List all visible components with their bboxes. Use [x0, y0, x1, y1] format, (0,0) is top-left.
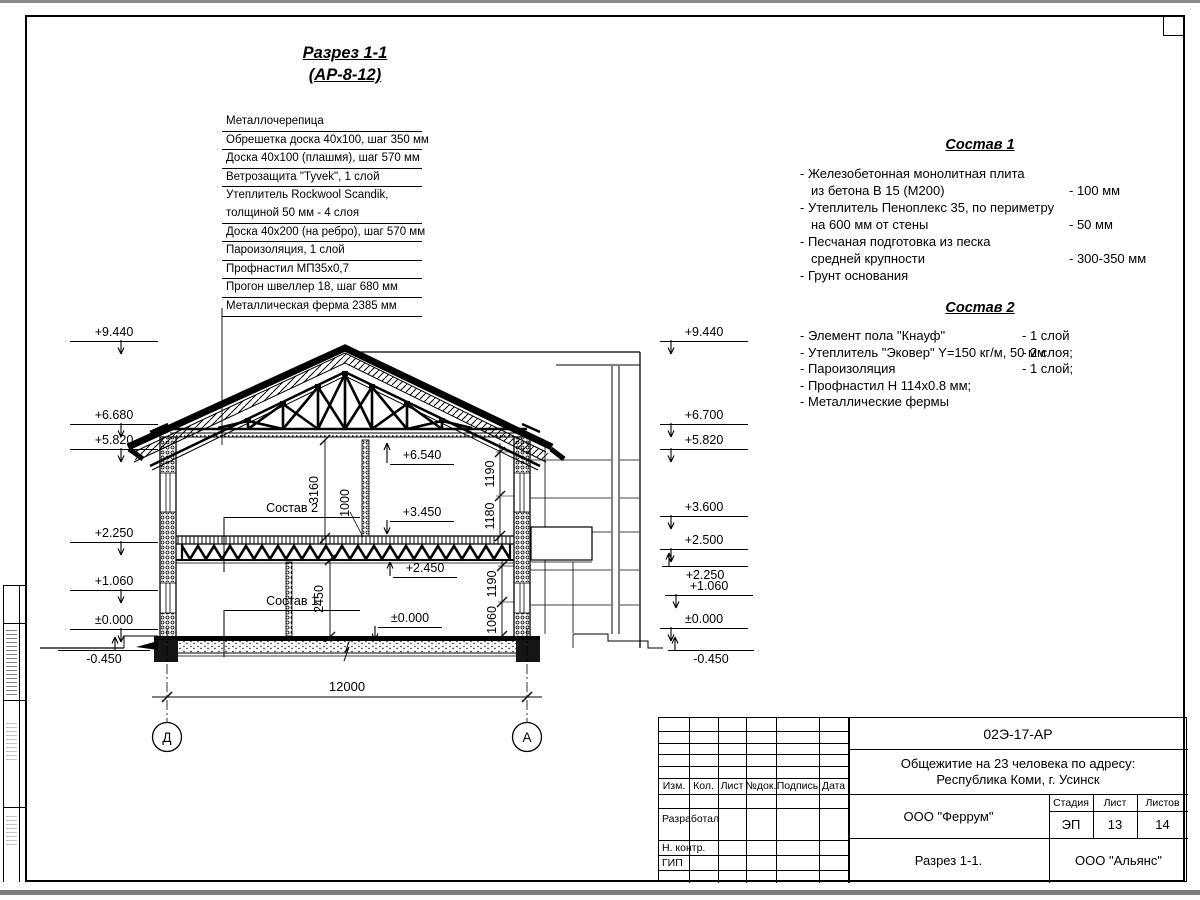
value: ЭП [1062, 817, 1081, 832]
sostav-row: - Элемент пола "Кнауф"- 1 слой [800, 328, 1160, 345]
elevation-value: +5.820 [95, 433, 134, 447]
elevation-arrow-icon [116, 589, 126, 605]
sostav-row: - Металлические фермы [800, 394, 1160, 411]
sostav-value [1058, 233, 1160, 250]
elevation-value: +1.060 [690, 579, 729, 593]
sostav-value: - 2 слоя; [1022, 345, 1160, 362]
sostav-text: - Грунт основания [800, 267, 1058, 284]
axis-letter-right: А [522, 730, 531, 745]
col-label: Кол. [693, 780, 714, 792]
label: Листов [1145, 797, 1179, 809]
sostav-text: - Утеплитель Пеноплекс 35, по периметру [800, 199, 1058, 216]
sostav-text: - Металлические фермы [800, 394, 1022, 411]
elevation-value: -0.450 [693, 652, 728, 666]
elevation-mark-inner-2: +2.450 [393, 561, 457, 578]
sostav2-title: Состав 2 [800, 300, 1160, 316]
annex-steps [573, 634, 663, 648]
elevation-arrow-icon [110, 635, 120, 651]
col-label: Дата [822, 780, 845, 792]
roof-layers-list: Металлочерепица Обрешетка доска 40х100, … [222, 113, 422, 317]
dim-span: 12000 [329, 679, 365, 694]
layer-item: Прогон швеллер 18, шаг 680 мм [222, 279, 422, 298]
dim-1180: 1180 [483, 503, 497, 530]
col-podpis: Подпись [776, 778, 819, 794]
row-label: ГИП [662, 857, 683, 869]
dim-1060: 1060 [485, 606, 499, 634]
elevation-mark-right-7: ±0.000 [660, 612, 748, 629]
sostav-text: - Профнастил Н 114х0.8 мм; [800, 378, 1022, 395]
elevation-value: +6.700 [685, 408, 724, 422]
ref-text: Состав 2 [266, 501, 318, 515]
sostav-row: - Железобетонная монолитная плита [800, 165, 1160, 182]
elevation-value: +6.680 [95, 408, 134, 422]
foundation-right [516, 640, 540, 662]
sostav1-block: Состав 1 - Железобетонная монолитная пли… [800, 137, 1160, 284]
title-block-line [659, 794, 848, 795]
sheet-label: Лист [1093, 794, 1137, 811]
sostav-row: - Утеплитель Пеноплекс 35, по периметру [800, 199, 1160, 216]
row-ncontr: Н. контр. [662, 842, 705, 854]
sheets-total: 14 [1137, 811, 1188, 838]
drawing-title-text: Разрез 1-1. [915, 853, 982, 868]
dim-1190-lower: 1190 [485, 571, 499, 598]
elevation-value: ±0.000 [95, 613, 133, 627]
elevation-mark-right-8: -0.450 [668, 650, 754, 668]
elevation-arrow-icon [385, 560, 395, 576]
sostav-value [1022, 394, 1160, 411]
ref-label-sostav1: Состав 1 [224, 593, 360, 611]
dim-1190-upper: 1190 [483, 461, 497, 488]
elevation-mark-right-6: +1.060 [665, 579, 753, 596]
sostav2-block: Состав 2 - Элемент пола "Кнауф"- 1 слой … [800, 300, 1160, 411]
ground-slab [154, 636, 540, 662]
elevation-value: +2.500 [685, 533, 724, 547]
elevation-arrow-icon [666, 515, 676, 531]
elevation-arrow-icon [370, 626, 380, 642]
elevation-value: ±0.000 [391, 611, 429, 625]
sostav-row: - Утеплитель "Эковер" Y=150 кг/м, 50 мм-… [800, 345, 1160, 362]
elevation-arrow-icon [382, 441, 392, 463]
col-label: Лист [721, 780, 744, 792]
sostav-text: - Элемент пола "Кнауф" [800, 328, 1022, 345]
doc-code-text: 02Э-17-АР [983, 726, 1052, 742]
sostav-text: - Пароизоляция [800, 361, 1022, 378]
elevation-arrow-icon [666, 340, 676, 356]
sostav-value: - 1 слой; [1022, 361, 1160, 378]
layer-item: Утеплитель Rockwool Scandik, [222, 187, 422, 205]
drawing-sheet: 12000 3160 1000 2450 1190 1180 1190 1060… [0, 0, 1200, 900]
col-list: Лист [718, 778, 746, 794]
elevation-value: +3.600 [685, 500, 724, 514]
sostav-text: - Утеплитель "Эковер" Y=150 кг/м, 50 мм [800, 345, 1022, 362]
layer-item: Металлочерепица [222, 113, 422, 132]
elevation-mark-left-6: -0.450 [58, 650, 150, 668]
elevation-value: -0.450 [86, 652, 121, 666]
elevation-arrow-icon [670, 635, 680, 651]
sostav-value: - 50 мм [1069, 216, 1160, 233]
elevation-mark-right-2: +5.820 [660, 433, 748, 450]
sostav-row: - Профнастил Н 114х0.8 мм; [800, 378, 1160, 395]
sheet-drawing-title: Разрез 1-1. [848, 838, 1049, 883]
elevation-mark-left-1: +6.680 [70, 408, 158, 425]
elevation-mark-left-5: ±0.000 [70, 613, 158, 630]
col-data: Дата [819, 778, 848, 794]
layer-item: толщиной 50 мм - 4 слоя [222, 205, 422, 224]
annex-canopy-box [531, 527, 592, 560]
elevation-mark-left-4: +1.060 [70, 574, 158, 591]
sostav-text: на 600 мм от стены [800, 216, 1069, 233]
elevation-mark-inner-3: ±0.000 [378, 611, 442, 628]
doc-code: 02Э-17-АР [848, 718, 1188, 749]
elevation-value: +2.250 [95, 526, 134, 540]
sostav-value: - 100 мм [1069, 182, 1160, 199]
project-line1: Общежитие на 23 человека по адресу: [901, 756, 1135, 772]
elevation-mark-left-2: +5.820 [70, 433, 158, 450]
elevation-value: ±0.000 [685, 612, 723, 626]
org-text: ООО "Феррум" [904, 809, 994, 824]
sostav-text: - Песчаная подготовка из песка [800, 233, 1058, 250]
stage-label: Стадия [1049, 794, 1093, 811]
title-block: Изм. Кол. Лист №док. Подпись Дата Разраб… [658, 717, 1187, 882]
sostav-row: - Грунт основания [800, 267, 1160, 284]
sostav-row: из бетона В 15 (М200)- 100 мм [800, 182, 1160, 199]
col-ndok: №док. [746, 778, 776, 794]
sostav-row: на 600 мм от стены- 50 мм [800, 216, 1160, 233]
sheet-number: 13 [1093, 811, 1137, 838]
layer-item: Пароизоляция, 1 слой [222, 242, 422, 261]
sostav1-title: Состав 1 [800, 137, 1160, 153]
value: 14 [1155, 817, 1169, 832]
row-label: Н. контр. [662, 842, 705, 854]
col-izm: Изм. [659, 778, 689, 794]
elevation-mark-left-0: +9.440 [70, 325, 158, 342]
layer-item: Обрешетка доска 40х100, шаг 350 мм [222, 132, 422, 151]
label: Стадия [1053, 797, 1089, 809]
ground-left [40, 636, 158, 650]
row-gip: ГИП [662, 857, 683, 869]
row-label: Разработал [662, 813, 719, 825]
sostav-text: из бетона В 15 (М200) [800, 182, 1069, 199]
org-ferrum: ООО "Феррум" [848, 794, 1049, 838]
col-label: Изм. [663, 780, 686, 792]
ref-label-sostav2: Состав 2 [224, 500, 360, 518]
sostav-value [1058, 199, 1160, 216]
org2-text: ООО "Альянс" [1075, 853, 1162, 868]
elevation-value: +6.540 [403, 448, 442, 462]
title-block-line [659, 808, 848, 809]
col-kol: Кол. [689, 778, 718, 794]
elevation-value: +5.820 [685, 433, 724, 447]
title-block-line [659, 870, 848, 871]
value: 13 [1108, 817, 1122, 832]
elevation-mark-right-0: +9.440 [660, 325, 748, 342]
elevation-arrow-icon [671, 594, 681, 610]
elevation-arrow-icon [664, 551, 674, 567]
stage-value: ЭП [1049, 811, 1093, 838]
sostav-text: - Железобетонная монолитная плита [800, 165, 1058, 182]
col-label: №док. [746, 780, 777, 792]
sheets-label: Листов [1137, 794, 1188, 811]
elevation-mark-right-4: +2.500 [660, 533, 748, 550]
elevation-arrow-icon [116, 340, 126, 356]
title-block-line [659, 743, 848, 744]
layer-item: Доска 40х200 (на ребро), шаг 570 мм [222, 224, 422, 243]
elevation-mark-right-1: +6.700 [660, 408, 748, 425]
right-wall [514, 437, 530, 640]
sostav-value [1058, 267, 1160, 284]
elevation-mark-inner-0: +6.540 [390, 448, 454, 465]
elevation-value: +3.450 [403, 505, 442, 519]
sostav-row: - Пароизоляция- 1 слой; [800, 361, 1160, 378]
layer-item: Металлическая ферма 2385 мм [222, 298, 422, 317]
elevation-arrow-icon [116, 448, 126, 464]
elevation-value: +2.450 [406, 561, 445, 575]
drawing-title: Разрез 1-1 (АР-8-12) [255, 42, 435, 86]
org-alyans: ООО "Альянс" [1049, 838, 1188, 883]
sostav-text: средней крупности [800, 250, 1069, 267]
sostav-row: средней крупности- 300-350 мм [800, 250, 1160, 267]
sostav-value [1022, 378, 1160, 395]
section-code: (АР-8-12) [309, 66, 381, 84]
title-block-line [659, 766, 848, 767]
layer-item: Ветрозащита "Tyvek", 1 слой [222, 169, 422, 188]
label: Лист [1104, 797, 1127, 809]
sostav-row: - Песчаная подготовка из песка [800, 233, 1160, 250]
elevation-arrow-icon [666, 448, 676, 464]
sostav-value [1058, 165, 1160, 182]
floor-truss [176, 536, 514, 563]
elevation-arrow-icon [116, 541, 126, 557]
project-name: Общежитие на 23 человека по адресу: Респ… [848, 749, 1188, 794]
layer-item: Доска 40х100 (плашмя), шаг 570 мм [222, 150, 422, 169]
elevation-arrow-icon [382, 520, 392, 536]
axis-letter-left: Д [162, 730, 171, 745]
project-line2: Республика Коми, г. Усинск [936, 772, 1099, 788]
title-block-line [659, 754, 848, 755]
col-label: Подпись [777, 780, 819, 792]
elevation-value: +1.060 [95, 574, 134, 588]
roof-insulation [134, 358, 546, 457]
elevation-value: +9.440 [95, 325, 134, 339]
sostav-value: - 1 слой [1022, 328, 1160, 345]
elevation-mark-left-3: +2.250 [70, 526, 158, 543]
sostav-value: - 300-350 мм [1069, 250, 1160, 267]
section-name: Разрез 1-1 [303, 44, 388, 62]
title-block-line [659, 731, 848, 732]
elevation-mark-inner-1: +3.450 [390, 505, 454, 522]
title-block-line [659, 855, 848, 856]
elevation-mark-right-3: +3.600 [660, 500, 748, 517]
elevation-value: +9.440 [685, 325, 724, 339]
ref-text: Состав 1 [266, 594, 318, 608]
left-wall [160, 437, 176, 640]
row-developed: Разработал [662, 813, 719, 825]
layer-item: Профнастил МП35х0,7 [222, 261, 422, 280]
